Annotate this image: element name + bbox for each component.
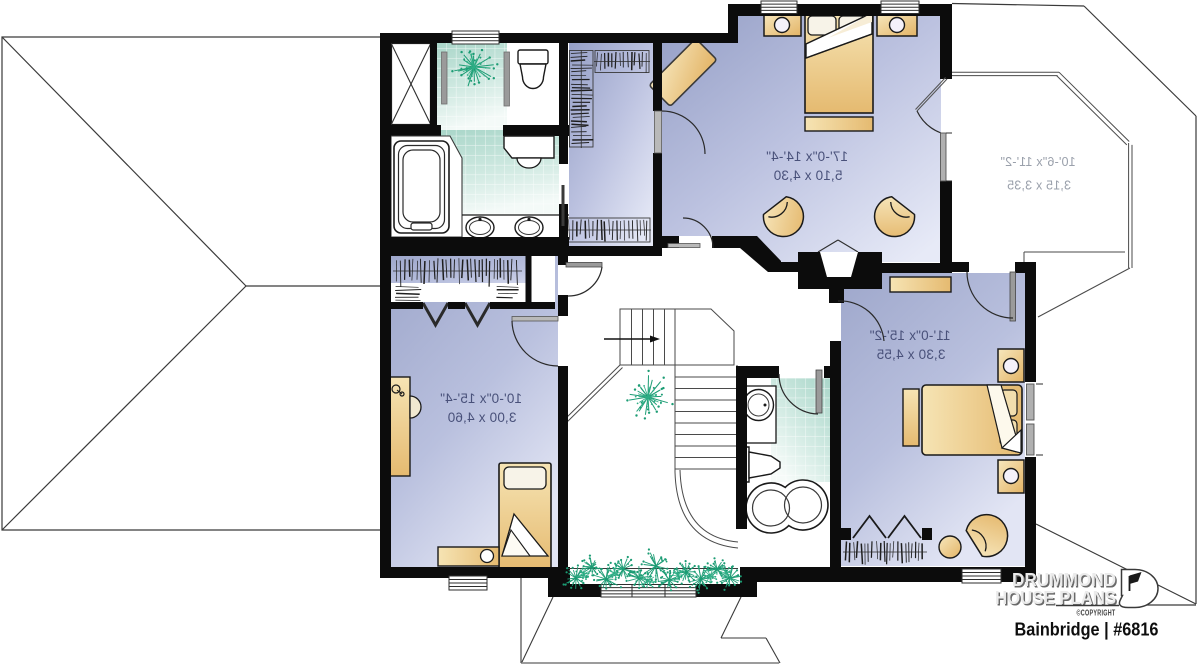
svg-text:3,30 x 4,55: 3,30 x 4,55 xyxy=(876,347,945,362)
svg-text:©COPYRIGHT: ©COPYRIGHT xyxy=(1077,609,1116,618)
svg-text:17'-0"x 14'-4": 17'-0"x 14'-4" xyxy=(766,149,848,164)
svg-text:5,10 x 4,30: 5,10 x 4,30 xyxy=(773,168,842,183)
svg-text:10'-0"x 15'-4": 10'-0"x 15'-4" xyxy=(440,391,522,406)
svg-text:3,00 x 4,60: 3,00 x 4,60 xyxy=(447,410,516,425)
svg-text:3,15 x 3,35: 3,15 x 3,35 xyxy=(1007,179,1071,193)
svg-text:10'-6"x 11'-2": 10'-6"x 11'-2" xyxy=(1000,155,1075,169)
svg-text:Bainbridge | #6816: Bainbridge | #6816 xyxy=(1015,619,1159,640)
